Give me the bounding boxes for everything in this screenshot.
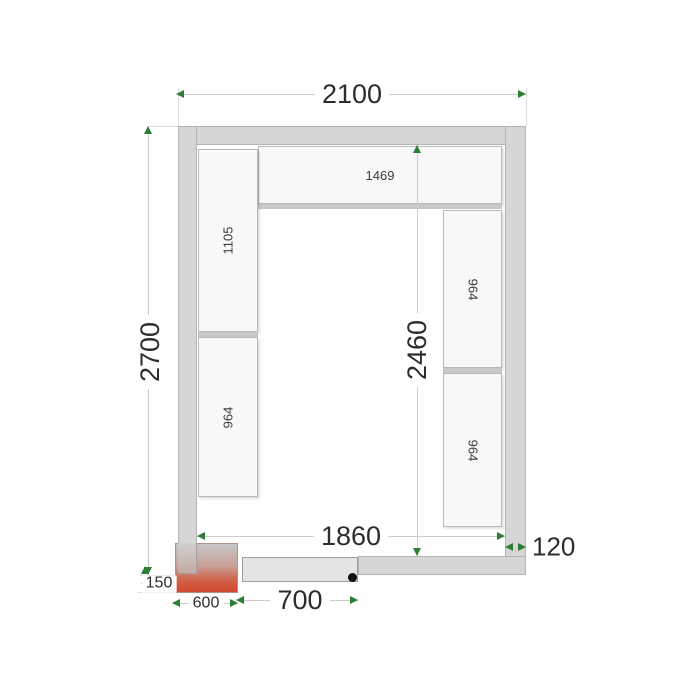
dim-label-inner-height: 2460 bbox=[403, 313, 431, 387]
shelf-top-label: 1469 bbox=[366, 168, 395, 183]
arrow-left-icon bbox=[172, 599, 180, 607]
arrow-right-icon bbox=[497, 532, 505, 540]
arrow-right-icon bbox=[350, 596, 358, 604]
arrow-up-icon bbox=[141, 566, 149, 574]
dim-label-outer-width: 2100 bbox=[315, 80, 389, 108]
dim-label-door-width: 700 bbox=[270, 586, 329, 614]
shelf-left-upper: 1105 bbox=[198, 149, 258, 332]
arrow-right-icon bbox=[518, 543, 526, 551]
arrow-left-icon bbox=[176, 90, 184, 98]
arrow-up-icon bbox=[144, 126, 152, 134]
shelf-right-lower: 964 bbox=[443, 373, 502, 527]
arrow-right-icon bbox=[518, 90, 526, 98]
arrow-left-icon bbox=[505, 543, 513, 551]
shelf-left-upper-label: 1105 bbox=[221, 227, 236, 255]
wall-bottom bbox=[358, 556, 526, 575]
door-hinge-dot-icon bbox=[348, 573, 357, 582]
dim-label-wall-thickness: 120 bbox=[532, 533, 575, 560]
wall-corner-overlay bbox=[178, 543, 197, 574]
door-leaf bbox=[242, 557, 358, 582]
dim-label-unit-offset: 150 bbox=[142, 576, 177, 593]
arrow-right-icon bbox=[230, 599, 238, 607]
shelf-top: 1469 bbox=[258, 146, 502, 204]
cold-room-plan: 1469 1105 964 964 964 2100 2700 2460 186… bbox=[0, 0, 700, 700]
shelf-right-upper-label: 964 bbox=[465, 278, 480, 300]
wall-right bbox=[505, 126, 526, 575]
shelf-divider bbox=[258, 204, 502, 209]
arrow-left-icon bbox=[197, 532, 205, 540]
shelf-left-lower: 964 bbox=[198, 337, 258, 497]
shelf-left-lower-label: 964 bbox=[220, 406, 235, 428]
shelf-right-lower-label: 964 bbox=[465, 439, 480, 461]
arrow-down-icon bbox=[413, 548, 421, 556]
wall-top bbox=[178, 126, 526, 145]
extension-line bbox=[526, 88, 527, 126]
dim-label-outer-height: 2700 bbox=[136, 315, 164, 389]
dim-label-unit-width: 600 bbox=[189, 596, 224, 613]
dim-label-inner-width: 1860 bbox=[314, 522, 388, 550]
arrow-up-icon bbox=[413, 145, 421, 153]
extension-line bbox=[148, 126, 178, 127]
shelf-right-upper: 964 bbox=[443, 210, 502, 368]
wall-left bbox=[178, 126, 197, 575]
